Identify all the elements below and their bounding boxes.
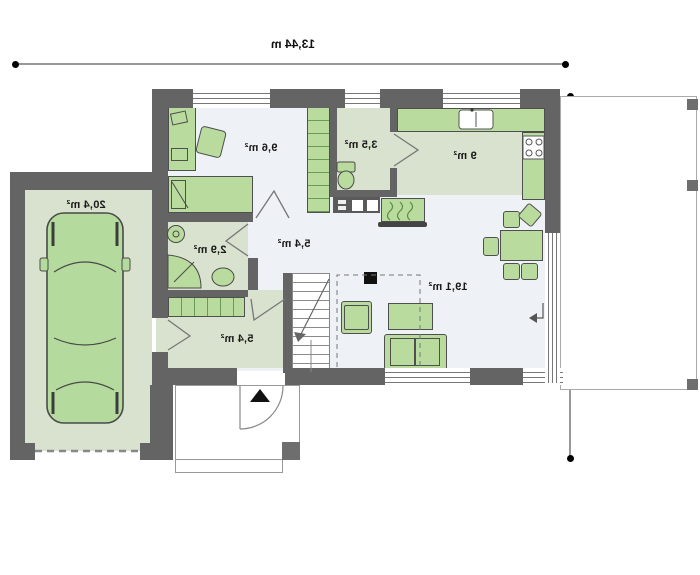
wc-area-label: 3,5 m² [321, 139, 401, 151]
shower [168, 255, 201, 288]
bedroom-area-label: 9,6 m² [221, 142, 301, 154]
garage-entry-door [168, 320, 190, 350]
plan-symbols-layer [0, 0, 700, 575]
stairs-run-line [299, 279, 329, 338]
entry-area-label: 5,4 m² [197, 333, 277, 345]
kitchen-area-label: 9 m² [425, 150, 505, 162]
stairs-arrow [294, 332, 306, 342]
toilet [337, 162, 355, 189]
washbasin [212, 268, 234, 286]
washing-machine [168, 226, 185, 243]
entry-hall-door [251, 299, 285, 320]
sideboard-details [338, 200, 378, 211]
bedroom-door [256, 191, 289, 218]
floor-plan: 13,44 m 8,94 m [0, 0, 700, 575]
garage-area-label: 20,4 m² [46, 199, 126, 211]
bed-fold-line [172, 182, 188, 208]
slider-arrow-head [529, 313, 537, 323]
hallway-area-label: 5,4 m² [254, 238, 334, 250]
stove [523, 136, 544, 159]
living-area-label: 19,1 m² [408, 281, 488, 293]
radiator-squiggle [398, 202, 403, 220]
entrance-arrow [250, 389, 270, 402]
car [40, 213, 130, 423]
radiator-squiggle [408, 202, 413, 220]
radiator-squiggle [388, 202, 393, 220]
bathroom-area-label: 2,9 m² [170, 244, 250, 256]
kitchen-sink [459, 108, 493, 129]
